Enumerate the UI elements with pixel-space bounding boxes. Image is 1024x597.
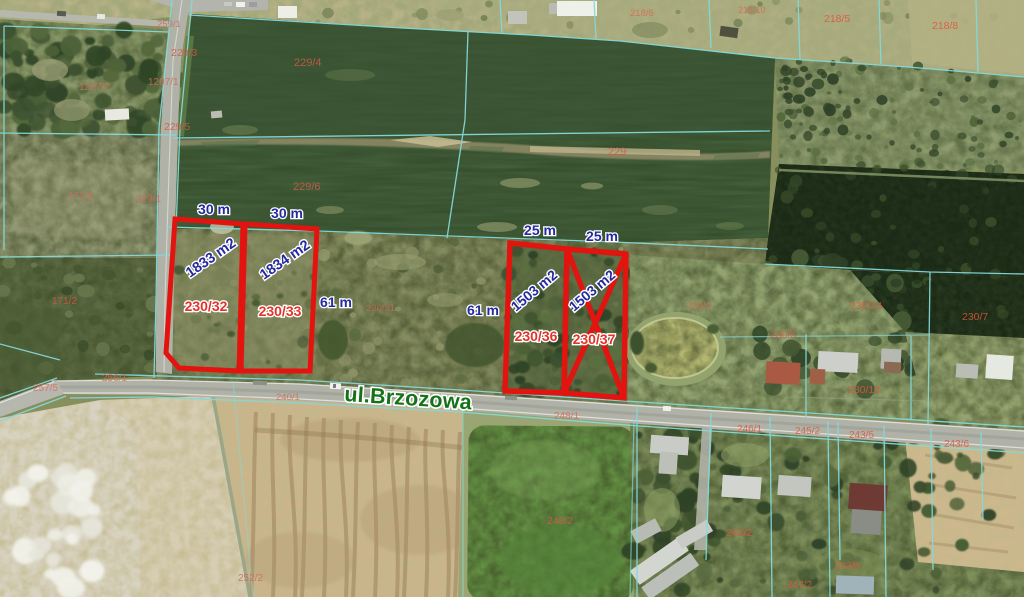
svg-text:171/2: 171/2: [52, 296, 77, 307]
svg-text:230/32: 230/32: [185, 298, 228, 314]
svg-text:1297/1: 1297/1: [148, 77, 179, 88]
svg-text:218/6: 218/6: [630, 8, 654, 19]
svg-text:230/36: 230/36: [515, 328, 558, 344]
svg-text:229/5: 229/5: [164, 121, 190, 133]
svg-text:248/1: 248/1: [554, 411, 579, 422]
svg-text:246/2: 246/2: [726, 527, 752, 539]
svg-text:229/4: 229/4: [294, 57, 322, 69]
svg-text:218/5: 218/5: [824, 13, 850, 25]
svg-text:30 m: 30 m: [198, 201, 230, 217]
svg-text:61 m: 61 m: [320, 294, 352, 310]
svg-text:229/6: 229/6: [293, 181, 321, 193]
svg-text:229/1: 229/1: [136, 194, 161, 205]
svg-text:218/10: 218/10: [738, 5, 766, 15]
svg-text:230/7: 230/7: [962, 311, 988, 323]
svg-text:246/1: 246/1: [737, 424, 762, 435]
svg-text:229/3: 229/3: [171, 47, 197, 59]
svg-text:256/1: 256/1: [102, 373, 127, 384]
svg-text:230/37: 230/37: [573, 331, 616, 347]
svg-text:248/2: 248/2: [547, 515, 573, 527]
svg-text:218/8: 218/8: [932, 20, 958, 32]
svg-text:230/33: 230/33: [259, 303, 302, 319]
svg-text:252/2: 252/2: [238, 573, 263, 584]
svg-text:229: 229: [608, 146, 626, 158]
svg-text:171/2: 171/2: [68, 191, 93, 202]
svg-text:257/5: 257/5: [33, 383, 58, 394]
svg-text:230/5: 230/5: [770, 329, 796, 341]
svg-text:243/6: 243/6: [835, 561, 860, 572]
svg-text:245/2: 245/2: [795, 426, 820, 437]
svg-text:61 m: 61 m: [467, 302, 499, 318]
svg-text:247/2: 247/2: [787, 580, 812, 591]
svg-text:230/13: 230/13: [848, 384, 880, 396]
svg-text:259/1: 259/1: [157, 19, 181, 30]
svg-text:243/5: 243/5: [849, 430, 874, 441]
svg-text:25 m: 25 m: [586, 228, 618, 244]
svg-text:230/4: 230/4: [686, 301, 711, 312]
svg-text:243/6: 243/6: [944, 439, 969, 450]
svg-text:230/14: 230/14: [850, 300, 882, 312]
svg-text:1207/2: 1207/2: [79, 82, 110, 93]
svg-text:230/31: 230/31: [366, 303, 395, 314]
svg-text:30 m: 30 m: [271, 205, 303, 221]
svg-text:240/1: 240/1: [276, 392, 300, 403]
svg-text:25 m: 25 m: [524, 222, 556, 238]
